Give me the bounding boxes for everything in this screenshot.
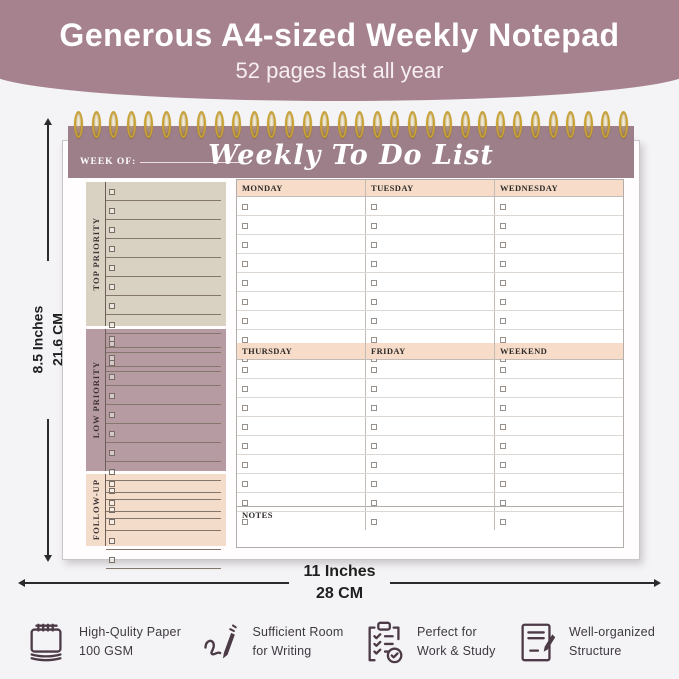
checkbox	[109, 246, 115, 252]
checkbox	[242, 424, 248, 430]
todo-cell	[494, 292, 623, 310]
binder-ring	[109, 111, 118, 138]
checkbox	[109, 431, 115, 437]
todo-cell	[494, 273, 623, 291]
checkbox	[500, 223, 506, 229]
spiral-rings	[74, 111, 628, 139]
priority-label-strip: FOLLOW-UP	[86, 474, 106, 546]
spiral-notepad-icon	[24, 619, 70, 665]
checkbox	[371, 443, 377, 449]
day-header-cell: THURSDAY	[237, 343, 365, 359]
todo-row	[106, 493, 221, 512]
binder-ring	[619, 111, 628, 138]
todo-cell	[237, 436, 365, 454]
todo-cell	[365, 493, 494, 511]
todo-cell	[365, 436, 494, 454]
todo-cell	[237, 493, 365, 511]
binder-ring	[338, 111, 347, 138]
priority-label-strip: TOP PRIORITY	[86, 182, 106, 326]
width-label: 11 Inches 28 CM	[303, 561, 375, 604]
todo-row	[106, 329, 221, 348]
checkbox	[242, 462, 248, 468]
priority-rows	[106, 182, 226, 326]
checkbox	[242, 367, 248, 373]
todo-row	[106, 258, 221, 277]
binder-ring	[408, 111, 417, 138]
todo-row	[106, 239, 221, 258]
binder-ring	[144, 111, 153, 138]
arrow-up-icon	[44, 118, 52, 125]
todo-cell	[237, 235, 365, 253]
checkbox	[500, 481, 506, 487]
todo-cell	[237, 474, 365, 492]
dimension-line	[25, 582, 289, 584]
checkbox	[242, 481, 248, 487]
todo-row	[237, 379, 623, 398]
checkbox	[371, 386, 377, 392]
day-header-cell: WEEKEND	[494, 343, 623, 359]
checkbox	[371, 462, 377, 468]
checkbox	[242, 443, 248, 449]
checkbox	[371, 367, 377, 373]
checkbox	[242, 318, 248, 324]
priority-label: LOW PRIORITY	[91, 361, 101, 438]
arrow-right-icon	[654, 579, 661, 587]
binder-ring	[426, 111, 435, 138]
todo-row	[106, 220, 221, 239]
binder-ring	[215, 111, 224, 138]
binder-ring	[250, 111, 259, 138]
todo-cell	[365, 455, 494, 473]
checkbox	[371, 204, 377, 210]
checkbox	[500, 318, 506, 324]
checkbox	[500, 204, 506, 210]
day-header-cell: TUESDAY	[365, 180, 494, 196]
checkbox	[109, 500, 115, 506]
todo-row	[106, 443, 221, 462]
priority-label: FOLLOW-UP	[91, 479, 101, 540]
todo-row	[106, 201, 221, 220]
binder-ring	[92, 111, 101, 138]
checkbox	[371, 405, 377, 411]
binder-ring	[531, 111, 540, 138]
checkbox	[500, 386, 506, 392]
binder-ring	[461, 111, 470, 138]
checkbox	[109, 303, 115, 309]
binder-ring	[549, 111, 558, 138]
height-dimension: 8.5 Inches 21.6 CM	[30, 118, 66, 562]
checkbox	[242, 299, 248, 305]
binder-ring	[390, 111, 399, 138]
todo-cell	[494, 254, 623, 272]
todo-cell	[237, 273, 365, 291]
day-rows	[237, 360, 623, 506]
checkbox	[371, 223, 377, 229]
dimension-line	[390, 582, 654, 584]
banner-subtitle: 52 pages last all year	[0, 58, 679, 84]
day-header-cell: WEDNESDAY	[494, 180, 623, 196]
checkbox	[109, 189, 115, 195]
arrow-left-icon	[18, 579, 25, 587]
checkbox	[500, 462, 506, 468]
binder-ring	[285, 111, 294, 138]
todo-cell	[494, 311, 623, 329]
checkbox	[109, 538, 115, 544]
todo-row	[237, 360, 623, 379]
notepad-page: TOP PRIORITYLOW PRIORITYFOLLOW-UP MONDAY…	[62, 140, 640, 560]
binder-ring	[303, 111, 312, 138]
checkbox	[242, 261, 248, 267]
todo-cell	[365, 512, 494, 530]
checkbox	[109, 355, 115, 361]
checkbox	[109, 336, 115, 342]
todo-cell	[365, 360, 494, 378]
priority-label-strip: LOW PRIORITY	[86, 329, 106, 471]
priority-column: TOP PRIORITYLOW PRIORITYFOLLOW-UP	[86, 182, 226, 549]
checkbox	[371, 481, 377, 487]
checkbox	[109, 557, 115, 563]
todo-row	[106, 296, 221, 315]
checkbox	[371, 519, 377, 525]
checkbox	[109, 208, 115, 214]
todo-cell	[237, 254, 365, 272]
binder-ring	[601, 111, 610, 138]
todo-cell	[365, 216, 494, 234]
todo-row	[106, 550, 221, 569]
todo-row	[237, 311, 623, 330]
feature-list: High-Qulity Paper 100 GSM Sufficient Roo…	[0, 610, 679, 674]
todo-cell	[494, 398, 623, 416]
checkbox	[500, 443, 506, 449]
todo-row	[237, 292, 623, 311]
day-header-row: THURSDAYFRIDAYWEEKEND	[237, 343, 623, 360]
checkbox	[242, 405, 248, 411]
todo-cell	[237, 379, 365, 397]
dimension-line	[47, 419, 49, 555]
todo-cell	[494, 379, 623, 397]
checkbox	[371, 280, 377, 286]
todo-cell	[494, 197, 623, 215]
binder-ring	[267, 111, 276, 138]
todo-row	[237, 417, 623, 436]
checkbox	[109, 374, 115, 380]
todo-cell	[237, 360, 365, 378]
checkbox	[371, 299, 377, 305]
todo-cell	[494, 235, 623, 253]
checkbox	[242, 204, 248, 210]
binder-ring	[162, 111, 171, 138]
checkbox	[500, 280, 506, 286]
todo-row	[106, 367, 221, 386]
checkbox	[109, 265, 115, 271]
priority-section: FOLLOW-UP	[86, 474, 226, 546]
binder-ring	[179, 111, 188, 138]
checkbox	[109, 322, 115, 328]
todo-row	[106, 531, 221, 550]
dimension-line	[47, 125, 49, 261]
todo-cell	[365, 417, 494, 435]
priority-section: TOP PRIORITY	[86, 182, 226, 326]
todo-row	[237, 398, 623, 417]
banner: Generous A4-sized Weekly Notepad 52 page…	[0, 0, 679, 101]
todo-row	[106, 182, 221, 201]
todo-cell	[365, 292, 494, 310]
todo-cell	[365, 235, 494, 253]
day-rows	[237, 197, 623, 343]
priority-rows	[106, 474, 226, 546]
checkbox	[500, 405, 506, 411]
todo-cell	[365, 379, 494, 397]
checkbox	[500, 519, 506, 525]
checkbox	[109, 393, 115, 399]
todo-cell	[237, 292, 365, 310]
todo-row	[237, 474, 623, 493]
checkbox	[109, 450, 115, 456]
todo-row	[237, 455, 623, 474]
checkbox	[242, 242, 248, 248]
feature-writing-room: Sufficient Room for Writing	[200, 610, 344, 674]
binder-ring	[513, 111, 522, 138]
todo-row	[106, 348, 221, 367]
todo-cell	[365, 474, 494, 492]
checkbox	[500, 367, 506, 373]
binder-ring	[584, 111, 593, 138]
checkbox	[371, 318, 377, 324]
todo-row	[106, 386, 221, 405]
todo-cell	[494, 474, 623, 492]
binder-ring	[373, 111, 382, 138]
feature-work-study: Perfect for Work & Study	[362, 610, 496, 674]
binder-ring	[197, 111, 206, 138]
todo-cell	[494, 436, 623, 454]
todo-row	[237, 436, 623, 455]
todo-row	[237, 273, 623, 292]
checkbox	[371, 242, 377, 248]
todo-cell	[237, 216, 365, 234]
todo-cell	[365, 398, 494, 416]
document-pen-icon	[514, 619, 560, 665]
checkbox	[371, 261, 377, 267]
checkbox	[109, 284, 115, 290]
binder-ring	[127, 111, 136, 138]
checkbox	[500, 500, 506, 506]
checkbox	[500, 424, 506, 430]
checkbox	[242, 386, 248, 392]
day-header-cell: FRIDAY	[365, 343, 494, 359]
todo-row	[237, 216, 623, 235]
checkbox	[242, 280, 248, 286]
checkbox	[109, 412, 115, 418]
todo-cell	[237, 197, 365, 215]
checkbox	[371, 424, 377, 430]
clipboard-check-icon	[362, 619, 408, 665]
todo-cell	[365, 311, 494, 329]
binder-ring	[232, 111, 241, 138]
binder-ring	[496, 111, 505, 138]
feature-structure: Well-organized Structure	[514, 610, 655, 674]
days-grid: MONDAYTUESDAYWEDNESDAYTHURSDAYFRIDAYWEEK…	[236, 179, 624, 548]
todo-cell	[237, 398, 365, 416]
todo-row	[237, 235, 623, 254]
checkbox	[371, 500, 377, 506]
todo-cell	[494, 512, 623, 530]
binder-ring	[443, 111, 452, 138]
day-header-cell: MONDAY	[237, 180, 365, 196]
todo-row	[106, 424, 221, 443]
todo-cell	[365, 273, 494, 291]
todo-cell	[494, 493, 623, 511]
banner-title: Generous A4-sized Weekly Notepad	[0, 0, 679, 54]
checkbox	[242, 223, 248, 229]
checkbox	[500, 242, 506, 248]
binder-ring	[74, 111, 83, 138]
pen-scribble-icon	[200, 620, 244, 664]
todo-row	[106, 474, 221, 493]
todo-row	[106, 277, 221, 296]
todo-cell	[494, 417, 623, 435]
checkbox	[242, 500, 248, 506]
todo-cell	[365, 254, 494, 272]
binder-ring	[478, 111, 487, 138]
checkbox	[500, 261, 506, 267]
todo-cell	[494, 360, 623, 378]
binder-ring	[355, 111, 364, 138]
todo-row	[106, 405, 221, 424]
todo-cell	[365, 197, 494, 215]
checkbox	[500, 299, 506, 305]
todo-cell	[237, 417, 365, 435]
day-header-row: MONDAYTUESDAYWEDNESDAY	[237, 180, 623, 197]
todo-cell	[237, 455, 365, 473]
todo-cell	[494, 216, 623, 234]
todo-row	[237, 493, 623, 512]
priority-rows	[106, 329, 226, 471]
todo-cell	[494, 455, 623, 473]
notepad: WEEK OF: Weekly To Do List TOP PRIORITYL…	[62, 111, 640, 560]
todo-row	[237, 512, 623, 530]
feature-paper-quality: High-Qulity Paper 100 GSM	[24, 610, 181, 674]
todo-row	[237, 254, 623, 273]
notepad-title: Weekly To Do List	[208, 140, 494, 171]
priority-label: TOP PRIORITY	[91, 217, 101, 290]
todo-row	[106, 512, 221, 531]
todo-cell	[237, 311, 365, 329]
checkbox	[109, 481, 115, 487]
binder-ring	[320, 111, 329, 138]
todo-row	[237, 197, 623, 216]
priority-section: LOW PRIORITY	[86, 329, 226, 471]
binder-ring	[566, 111, 575, 138]
product-image: Generous A4-sized Weekly Notepad 52 page…	[0, 0, 679, 679]
checkbox	[109, 519, 115, 525]
checkbox	[109, 227, 115, 233]
